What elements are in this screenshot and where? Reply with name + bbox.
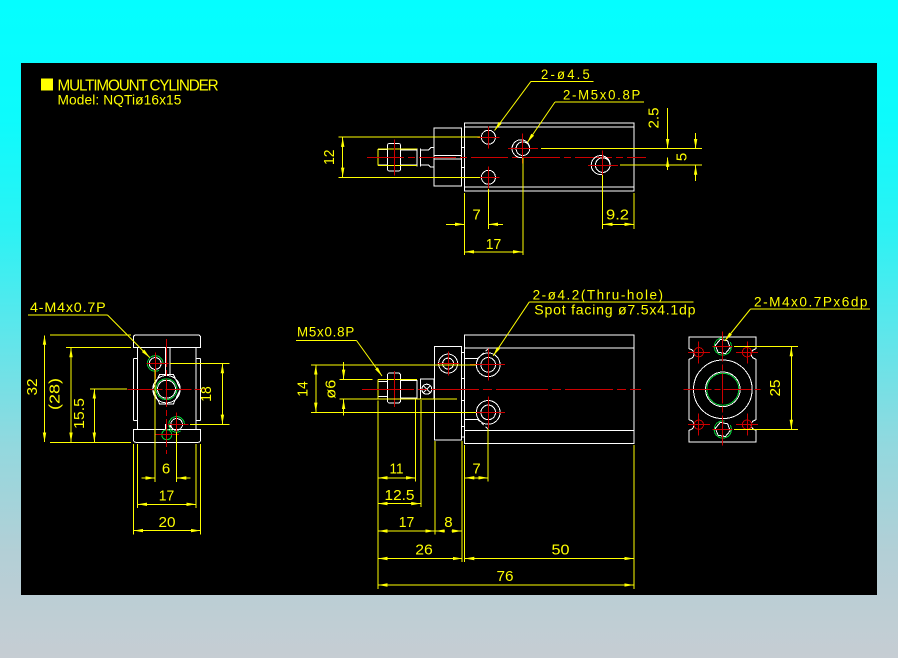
- svg-text:14: 14: [295, 381, 312, 397]
- svg-text:7: 7: [472, 461, 480, 478]
- svg-text:32: 32: [24, 379, 41, 396]
- svg-text:12.5: 12.5: [385, 487, 415, 504]
- svg-text:(28): (28): [47, 378, 64, 410]
- svg-text:M5x0.8P: M5x0.8P: [297, 324, 355, 340]
- svg-text:12: 12: [321, 149, 338, 165]
- svg-text:ø6: ø6: [323, 380, 340, 399]
- svg-text:17: 17: [159, 488, 175, 505]
- svg-text:76: 76: [497, 568, 514, 585]
- svg-text:2.5: 2.5: [646, 108, 663, 129]
- svg-text:15.5: 15.5: [71, 398, 88, 429]
- svg-text:5: 5: [674, 153, 691, 161]
- svg-text:4-M4x0.7P: 4-M4x0.7P: [30, 299, 107, 315]
- svg-text:50: 50: [552, 542, 570, 559]
- svg-text:9.2: 9.2: [606, 207, 629, 224]
- svg-text:17: 17: [486, 236, 502, 253]
- svg-text:2-M5x0.8P: 2-M5x0.8P: [563, 87, 642, 103]
- svg-text:11: 11: [390, 461, 404, 478]
- svg-text:Spot facing ø7.5x4.1dp: Spot facing ø7.5x4.1dp: [534, 302, 696, 318]
- svg-text:18: 18: [198, 386, 215, 402]
- svg-text:2-ø4.5: 2-ø4.5: [541, 66, 592, 82]
- svg-text:6: 6: [162, 461, 170, 478]
- svg-text:26: 26: [415, 542, 433, 559]
- svg-text:17: 17: [399, 514, 415, 531]
- svg-text:Model: NQTiø16x15: Model: NQTiø16x15: [58, 92, 182, 108]
- svg-text:7: 7: [472, 207, 480, 224]
- svg-text:25: 25: [767, 380, 784, 397]
- svg-text:2-ø4.2(Thru-hole): 2-ø4.2(Thru-hole): [533, 286, 665, 302]
- svg-text:20: 20: [159, 514, 176, 531]
- svg-text:8: 8: [444, 514, 452, 531]
- svg-text:2-M4x0.7Px6dp: 2-M4x0.7Px6dp: [754, 294, 869, 310]
